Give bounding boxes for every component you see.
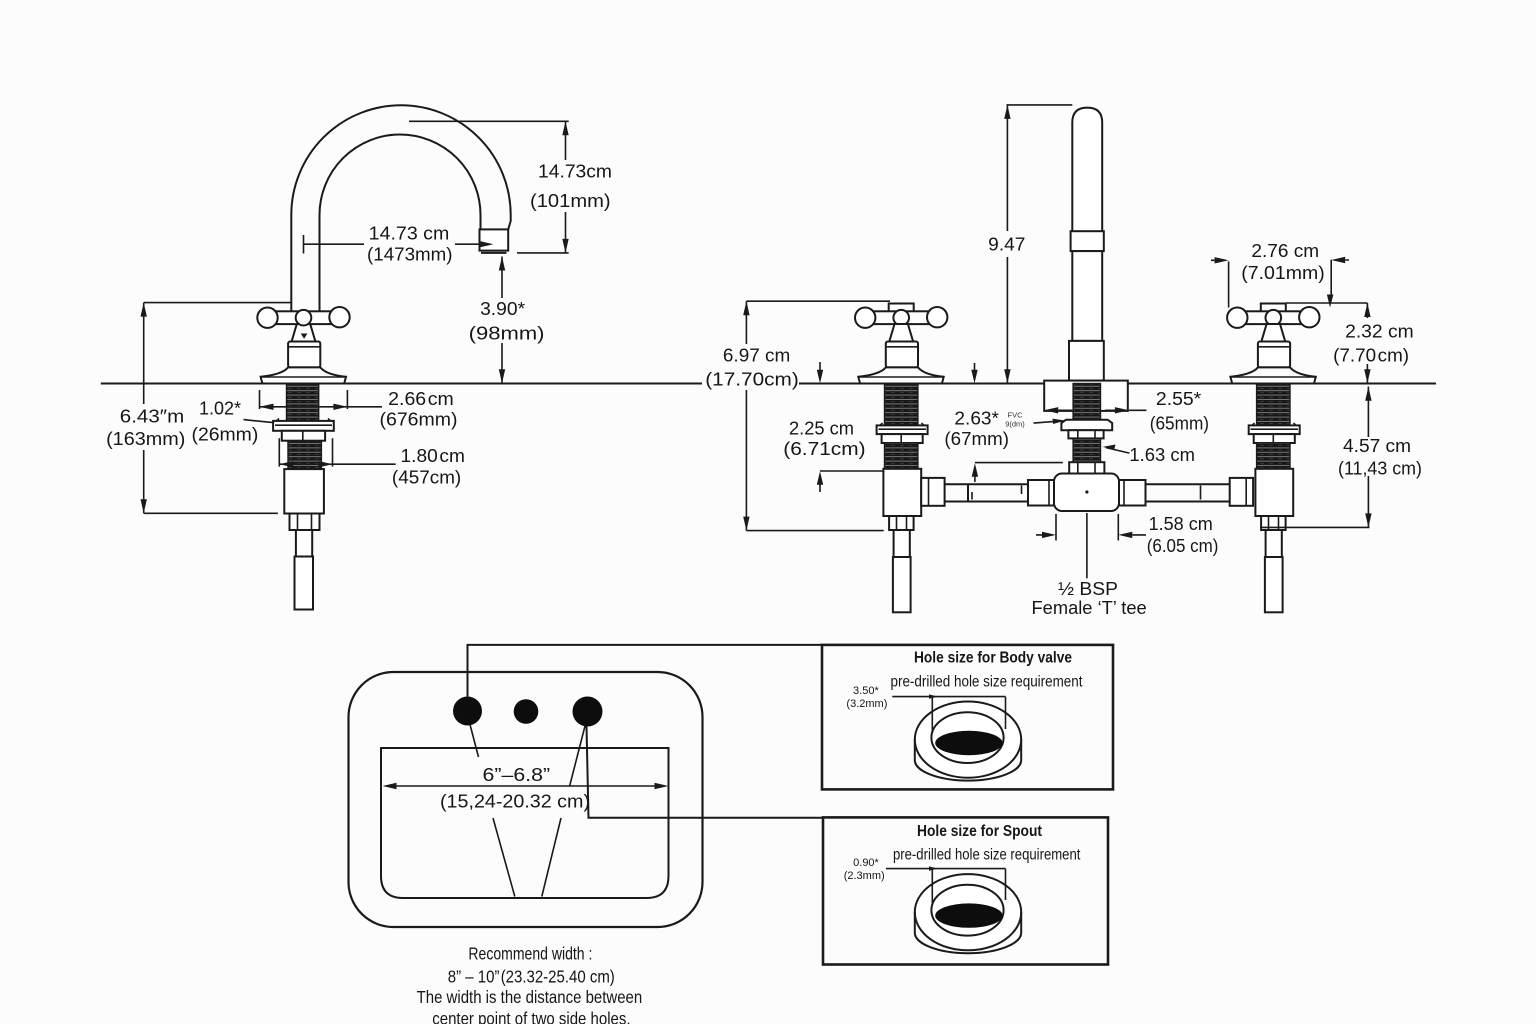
- svg-text:14.73cm: 14.73cm: [538, 161, 612, 182]
- svg-text:2.66 cm: 2.66 cm: [388, 388, 454, 409]
- svg-text:1.58 cm: 1.58 cm: [1149, 513, 1213, 534]
- svg-text:14.73 cm: 14.73 cm: [369, 222, 450, 243]
- svg-text:3.90*: 3.90*: [480, 298, 525, 319]
- svg-text:2.76 cm: 2.76 cm: [1251, 240, 1319, 261]
- svg-text:(65mm): (65mm): [1150, 412, 1209, 433]
- svg-text:2.63*: 2.63*: [954, 407, 999, 428]
- svg-text:0.90*: 0.90*: [853, 857, 879, 869]
- svg-text:(98mm): (98mm): [469, 322, 545, 343]
- svg-text:(6.05 cm): (6.05 cm): [1147, 535, 1219, 556]
- svg-text:Female ‘T’ tee: Female ‘T’ tee: [1032, 597, 1147, 618]
- svg-text:1.63 cm: 1.63 cm: [1129, 444, 1195, 465]
- svg-text:8” – 10” (23.32-25.40 cm): 8” – 10” (23.32-25.40 cm): [448, 967, 615, 987]
- svg-text:(676mm): (676mm): [380, 409, 458, 430]
- svg-text:9(dm): 9(dm): [1005, 420, 1025, 429]
- svg-text:Recommend width :: Recommend width :: [468, 944, 592, 964]
- svg-text:9.47: 9.47: [988, 234, 1025, 255]
- svg-text:pre-drilled hole size requirem: pre-drilled hole size requirement: [893, 846, 1081, 863]
- svg-text:(3.2mm): (3.2mm): [846, 698, 887, 710]
- svg-text:The width is the distance betw: The width is the distance between: [417, 987, 643, 1007]
- svg-text:Hole size for Spout: Hole size for Spout: [917, 823, 1042, 840]
- svg-text:6.97 cm: 6.97 cm: [723, 345, 790, 366]
- svg-text:2.25 cm: 2.25 cm: [789, 418, 854, 439]
- svg-text:(67mm): (67mm): [944, 428, 1009, 449]
- svg-text:(11,43 cm): (11,43 cm): [1338, 457, 1422, 478]
- svg-text:(26mm): (26mm): [192, 424, 259, 445]
- svg-text:(17.70cm): (17.70cm): [705, 369, 799, 390]
- svg-text:(2.3mm): (2.3mm): [844, 870, 885, 882]
- svg-text:center point of two side holes: center point of two side holes.: [432, 1009, 630, 1024]
- svg-text:3.50*: 3.50*: [853, 685, 879, 697]
- svg-text:2.32 cm: 2.32 cm: [1345, 321, 1414, 342]
- svg-text:(7.01mm): (7.01mm): [1241, 262, 1325, 283]
- svg-text:(15,24-20.32 cm): (15,24-20.32 cm): [440, 790, 590, 811]
- svg-text:2.55*: 2.55*: [1156, 388, 1201, 409]
- svg-text:(7.70 cm): (7.70 cm): [1333, 344, 1409, 365]
- svg-text:½ BSP: ½ BSP: [1058, 578, 1118, 599]
- svg-text:(457cm): (457cm): [392, 467, 461, 488]
- svg-text:1.02*: 1.02*: [199, 398, 241, 419]
- svg-text:pre-drilled hole size requirem: pre-drilled hole size requirement: [891, 674, 1084, 691]
- svg-text:(1473mm): (1473mm): [367, 243, 453, 264]
- svg-text:(6.71cm): (6.71cm): [783, 438, 865, 459]
- svg-text:Hole size for Body valve: Hole size for Body valve: [914, 650, 1072, 667]
- svg-text:4.57 cm: 4.57 cm: [1343, 435, 1411, 456]
- svg-text:6”–6.8”: 6”–6.8”: [483, 764, 551, 785]
- svg-text:(163mm): (163mm): [106, 428, 185, 449]
- svg-text:1.80 cm: 1.80 cm: [401, 445, 465, 466]
- svg-text:FVC: FVC: [1008, 411, 1024, 420]
- svg-text:(101mm): (101mm): [530, 190, 611, 211]
- svg-text:6.43″m: 6.43″m: [120, 406, 184, 427]
